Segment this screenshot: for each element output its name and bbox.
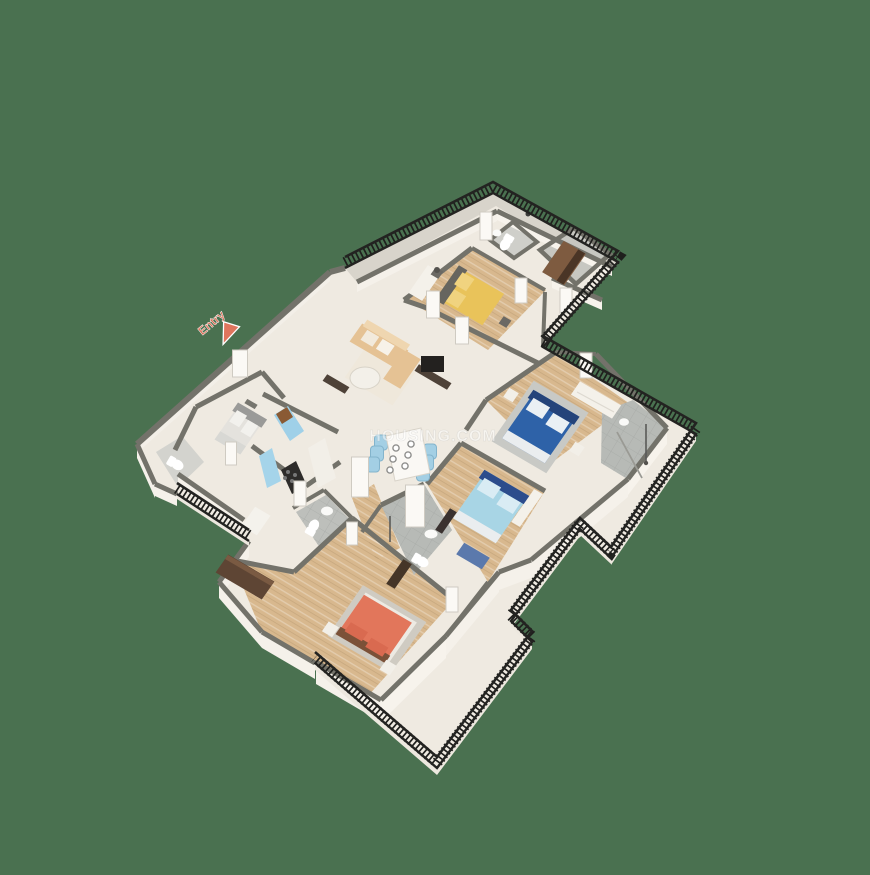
- svg-text:HOUSING.COM: HOUSING.COM: [369, 428, 496, 445]
